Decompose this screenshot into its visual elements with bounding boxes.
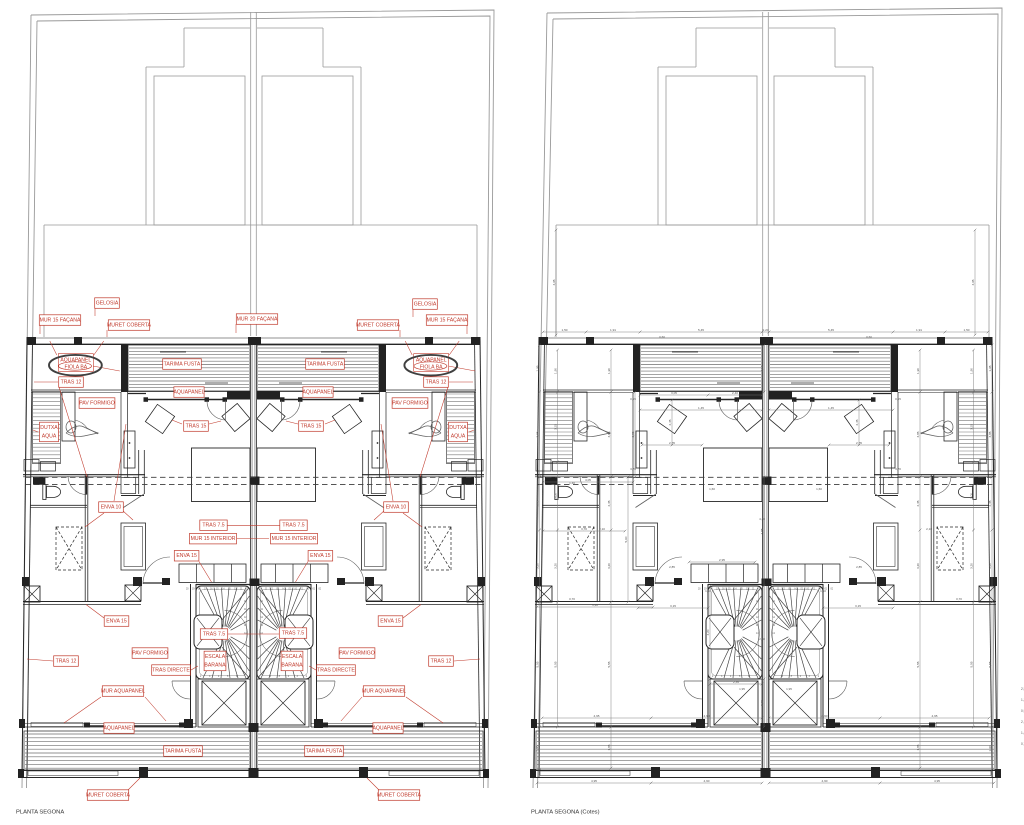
svg-text:3,20: 3,20 xyxy=(554,563,558,569)
svg-text:4,95: 4,95 xyxy=(591,779,597,783)
svg-text:TRAS 15: TRAS 15 xyxy=(301,423,322,429)
svg-text:3,15: 3,15 xyxy=(970,424,974,430)
svg-text:PAV FORMIGO: PAV FORMIGO xyxy=(79,400,115,406)
svg-text:3,85: 3,85 xyxy=(536,431,540,437)
svg-text:TRAS 7.5: TRAS 7.5 xyxy=(202,523,224,529)
svg-text:MUR AQUAPANEL: MUR AQUAPANEL xyxy=(101,688,145,694)
svg-text:2,35: 2,35 xyxy=(607,500,611,506)
svg-text:5,55: 5,55 xyxy=(988,661,992,667)
svg-text:0,20: 0,20 xyxy=(762,328,768,332)
svg-text:1,85: 1,85 xyxy=(916,744,920,750)
svg-text:MUR 20 FAÇANA: MUR 20 FAÇANA xyxy=(237,316,278,322)
svg-text:MURET COBERTA: MURET COBERTA xyxy=(86,792,131,798)
svg-text:PLANTA SEGONA: PLANTA SEGONA xyxy=(16,810,64,816)
svg-text:BARANA: BARANA xyxy=(204,663,226,669)
svg-text:AQUAPANEL: AQUAPANEL xyxy=(416,357,447,363)
svg-text:TRAS 12: TRAS 12 xyxy=(431,658,452,664)
svg-text:3,85: 3,85 xyxy=(988,431,992,437)
svg-text:3,15: 3,15 xyxy=(554,424,558,430)
svg-text:2,35: 2,35 xyxy=(988,500,992,506)
svg-text:2,85: 2,85 xyxy=(856,565,862,569)
svg-text:GELOSIA: GELOSIA xyxy=(414,301,437,307)
svg-text:MUR 15 FAÇANA: MUR 15 FAÇANA xyxy=(40,317,81,323)
svg-text:0,15: 0,15 xyxy=(895,397,901,401)
svg-text:AQUAPANEL: AQUAPANEL xyxy=(372,725,403,731)
svg-text:2,10: 2,10 xyxy=(926,527,932,531)
svg-text:TRAS DIRECTE: TRAS DIRECTE xyxy=(152,667,190,673)
svg-text:MUR AQUAPANEL: MUR AQUAPANEL xyxy=(362,688,406,694)
svg-text:3,85: 3,85 xyxy=(607,431,611,437)
svg-text:4,85: 4,85 xyxy=(760,528,764,534)
svg-text:ENVA 15: ENVA 15 xyxy=(106,618,127,624)
svg-text:TRAS DIRECTE: TRAS DIRECTE xyxy=(317,667,355,673)
svg-text:4,95: 4,95 xyxy=(552,279,556,285)
svg-text:ENVA 15: ENVA 15 xyxy=(380,618,401,624)
svg-text:5,55: 5,55 xyxy=(970,661,974,667)
svg-text:1,91: 1,91 xyxy=(916,328,922,332)
svg-text:3,85: 3,85 xyxy=(916,431,920,437)
svg-text:2,40: 2,40 xyxy=(732,391,738,395)
svg-text:5,55: 5,55 xyxy=(916,661,920,667)
svg-text:1,90: 1,90 xyxy=(988,745,992,751)
svg-text:ENVA 10: ENVA 10 xyxy=(101,504,122,510)
svg-text:1,60: 1,60 xyxy=(709,487,715,491)
svg-text:PLANTA SEGONA (Cotes): PLANTA SEGONA (Cotes) xyxy=(531,810,600,816)
svg-text:1,95: 1,95 xyxy=(739,687,745,691)
svg-text:TARIMA FUSTA: TARIMA FUSTA xyxy=(164,361,201,367)
svg-text:1,90: 1,90 xyxy=(916,368,920,374)
svg-text:1,90: 1,90 xyxy=(536,745,540,751)
svg-text:AQUAPANEL: AQUAPANEL xyxy=(302,389,333,395)
svg-text:4,90: 4,90 xyxy=(703,779,709,783)
svg-text:5,60: 5,60 xyxy=(624,536,628,542)
svg-text:5,45: 5,45 xyxy=(828,328,834,332)
svg-text:5,55: 5,55 xyxy=(536,661,540,667)
svg-text:3,85: 3,85 xyxy=(631,431,635,437)
svg-text:1,45: 1,45 xyxy=(828,406,834,410)
svg-text:3,15: 3,15 xyxy=(670,604,676,608)
svg-text:5,20: 5,20 xyxy=(592,603,598,607)
svg-text:1,95: 1,95 xyxy=(988,365,992,371)
svg-text:ENVA 10: ENVA 10 xyxy=(386,504,407,510)
svg-text:PAV FORMIGO: PAV FORMIGO xyxy=(132,650,168,656)
svg-text:5,45: 5,45 xyxy=(698,328,704,332)
svg-text:3,20: 3,20 xyxy=(988,563,992,569)
svg-text:TARIMA FUSTA: TARIMA FUSTA xyxy=(306,748,343,754)
svg-text:1,45: 1,45 xyxy=(698,406,704,410)
svg-text:AQUAPANEL: AQUAPANEL xyxy=(173,389,204,395)
svg-text:4,90: 4,90 xyxy=(821,779,827,783)
svg-text:2,35: 2,35 xyxy=(536,500,540,506)
svg-text:1,10: 1,10 xyxy=(705,589,711,593)
svg-text:2,45: 2,45 xyxy=(855,419,859,425)
svg-text:MURET COBERTA: MURET COBERTA xyxy=(377,792,422,798)
svg-text:3,70: 3,70 xyxy=(581,527,587,531)
svg-text:2,95: 2,95 xyxy=(719,558,725,562)
svg-text:TARIMA FUSTA: TARIMA FUSTA xyxy=(165,748,202,754)
svg-text:1,90: 1,90 xyxy=(554,368,558,374)
svg-text:TRAS 12: TRAS 12 xyxy=(61,379,82,385)
svg-text:3,00: 3,00 xyxy=(554,493,558,499)
svg-text:PAV FORMIGO: PAV FORMIGO xyxy=(339,650,375,656)
svg-text:2,35: 2,35 xyxy=(916,500,920,506)
svg-text:FIOLA BA: FIOLA BA xyxy=(420,365,443,371)
svg-text:3,20: 3,20 xyxy=(970,563,974,569)
svg-text:3,20: 3,20 xyxy=(607,563,611,569)
svg-text:3,70: 3,70 xyxy=(895,467,901,471)
svg-text:4,20: 4,20 xyxy=(759,517,765,521)
svg-text:TRAS 7.5: TRAS 7.5 xyxy=(203,631,225,637)
svg-text:3,20: 3,20 xyxy=(916,563,920,569)
svg-text:ESCALA: ESCALA xyxy=(282,654,303,660)
svg-text:1,50: 1,50 xyxy=(561,328,567,332)
svg-text:2,10: 2,10 xyxy=(760,365,764,371)
svg-text:TRAS 12: TRAS 12 xyxy=(56,658,77,664)
svg-text:0,60: 0,60 xyxy=(866,335,872,339)
svg-text:1,50: 1,50 xyxy=(963,328,969,332)
svg-text:PAV FORMIGO: PAV FORMIGO xyxy=(392,400,428,406)
svg-text:3,05: 3,05 xyxy=(671,391,677,395)
svg-text:MUR 15 INTERIOR: MUR 15 INTERIOR xyxy=(272,536,317,542)
svg-text:MUR 15 FAÇANA: MUR 15 FAÇANA xyxy=(427,317,468,323)
svg-text:4,90: 4,90 xyxy=(821,714,827,718)
svg-text:4,90: 4,90 xyxy=(703,714,709,718)
svg-text:TRAS 7.5: TRAS 7.5 xyxy=(282,523,304,529)
svg-text:4,20: 4,20 xyxy=(706,629,710,635)
svg-text:4,05: 4,05 xyxy=(585,478,591,482)
svg-text:1,90: 1,90 xyxy=(607,368,611,374)
svg-text:1,85: 1,85 xyxy=(607,744,611,750)
svg-text:DUTXA: DUTXA xyxy=(40,425,58,431)
svg-text:4,95: 4,95 xyxy=(593,714,599,718)
svg-text:ENVA 15: ENVA 15 xyxy=(176,553,197,559)
svg-text:1,95: 1,95 xyxy=(786,687,792,691)
svg-text:TRAS 15: TRAS 15 xyxy=(186,423,207,429)
svg-text:2,45: 2,45 xyxy=(668,419,672,425)
svg-text:AQUA: AQUA xyxy=(42,434,57,440)
svg-text:5,55: 5,55 xyxy=(607,661,611,667)
svg-text:3,00: 3,00 xyxy=(970,493,974,499)
svg-text:1,95: 1,95 xyxy=(536,365,540,371)
svg-text:2,85: 2,85 xyxy=(669,565,675,569)
svg-text:GELOSIA: GELOSIA xyxy=(96,300,119,306)
svg-text:4,95: 4,95 xyxy=(971,279,975,285)
svg-text:MURET COBERTA: MURET COBERTA xyxy=(107,322,152,328)
svg-text:1,10: 1,10 xyxy=(820,589,826,593)
svg-text:0,70: 0,70 xyxy=(956,597,962,601)
svg-text:3,15: 3,15 xyxy=(855,604,861,608)
svg-text:2,10: 2,10 xyxy=(599,527,605,531)
svg-text:2,15: 2,15 xyxy=(760,700,764,706)
svg-text:TARIMA FUSTA: TARIMA FUSTA xyxy=(307,361,344,367)
svg-text:1,90: 1,90 xyxy=(970,368,974,374)
svg-text:3,20: 3,20 xyxy=(536,563,540,569)
svg-text:MURET COBERTA: MURET COBERTA xyxy=(356,322,401,328)
svg-text:4,95: 4,95 xyxy=(934,779,940,783)
svg-text:AQUAPANEL: AQUAPANEL xyxy=(60,357,91,363)
svg-text:FIOLA BA: FIOLA BA xyxy=(64,365,87,371)
svg-text:5,55: 5,55 xyxy=(554,661,558,667)
svg-text:ENVA 15: ENVA 15 xyxy=(310,553,331,559)
svg-text:0,70: 0,70 xyxy=(569,597,575,601)
svg-text:1,91: 1,91 xyxy=(610,328,616,332)
svg-text:TRAS 12: TRAS 12 xyxy=(426,379,447,385)
svg-text:3,70: 3,70 xyxy=(630,467,636,471)
svg-text:4,95: 4,95 xyxy=(931,714,937,718)
svg-text:ESCALA: ESCALA xyxy=(205,654,226,660)
svg-text:BARANA: BARANA xyxy=(281,663,303,669)
svg-text:2,80: 2,80 xyxy=(759,637,765,641)
svg-text:1,60: 1,60 xyxy=(816,487,822,491)
svg-text:MUR 15 INTERIOR: MUR 15 INTERIOR xyxy=(191,536,236,542)
svg-text:0,60: 0,60 xyxy=(659,335,665,339)
svg-text:TRAS 7.5: TRAS 7.5 xyxy=(282,630,304,636)
svg-text:AQUA: AQUA xyxy=(451,434,466,440)
svg-text:0,15: 0,15 xyxy=(630,397,636,401)
svg-text:AQUAPANEL: AQUAPANEL xyxy=(103,725,134,731)
svg-text:1,40: 1,40 xyxy=(569,481,575,485)
svg-text:DUTXA: DUTXA xyxy=(449,425,467,431)
svg-text:2,35: 2,35 xyxy=(733,680,739,684)
